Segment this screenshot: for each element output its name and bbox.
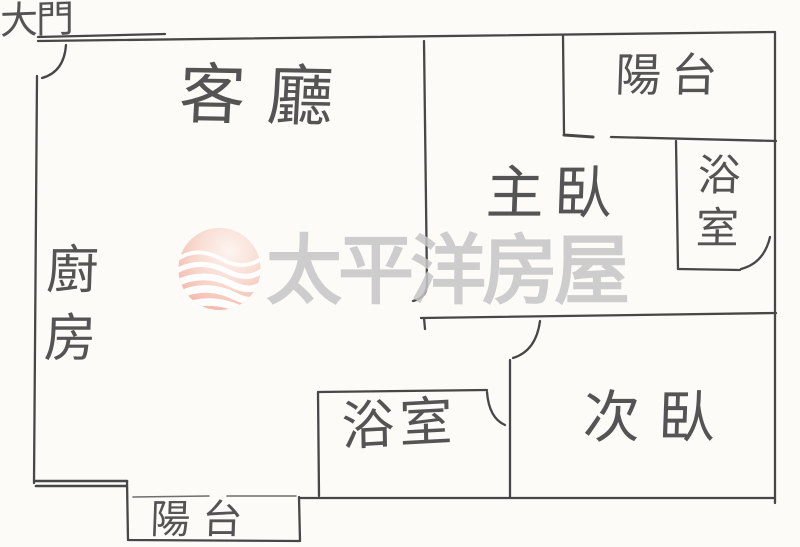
label-balcony-bottom: 陽台 xyxy=(150,500,255,540)
bathroom-top-west-wall xyxy=(676,141,678,269)
wall-master-south xyxy=(421,313,776,329)
label-second-bedroom: 次臥 xyxy=(582,390,734,447)
wall-living-master xyxy=(413,41,427,301)
wall-top xyxy=(38,32,775,41)
label-kitchen: 廚房 xyxy=(37,242,94,378)
label-living-room: 客廳 xyxy=(178,62,357,131)
label-bathroom-bottom: 浴室 xyxy=(341,395,458,454)
bathroom-bottom-door-arc xyxy=(487,392,505,425)
label-main-door: 大門 xyxy=(0,0,72,40)
label-balcony-top: 陽台 xyxy=(614,52,728,98)
balcony-bathroom-top-wall xyxy=(611,137,776,141)
bathroom-top-door-arc xyxy=(741,237,770,269)
main-door-arc xyxy=(42,45,66,78)
bathroom-top-south-wall xyxy=(678,269,740,270)
wall-bottom-left xyxy=(35,481,127,486)
label-bathroom-top: 浴室 xyxy=(690,152,737,258)
balcony-top-west-wall xyxy=(563,35,564,133)
balcony-top-south-wall xyxy=(564,135,593,137)
second-bedroom-door-arc xyxy=(513,321,540,358)
label-master-bedroom: 主臥 xyxy=(485,164,623,222)
floorplan-sketch: 大門 客廳 陽台 主臥 浴室 廚房 浴室 次臥 陽台 xyxy=(0,0,800,547)
